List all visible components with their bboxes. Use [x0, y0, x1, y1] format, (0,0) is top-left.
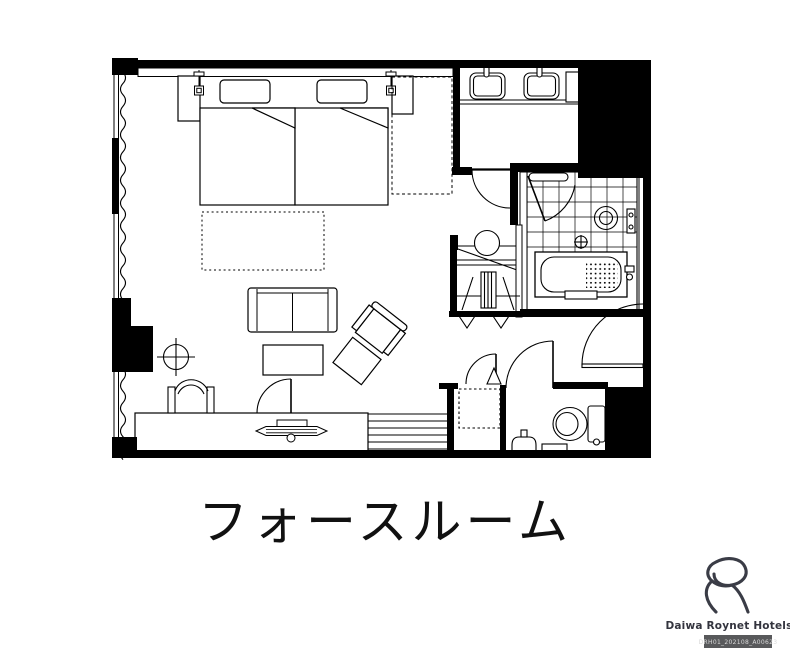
pillow: [317, 80, 367, 103]
toilet: [553, 406, 605, 445]
bed-mattress: [200, 108, 295, 205]
daiwa-roynet-monogram-icon: [706, 559, 748, 612]
coffee-table: [263, 345, 323, 375]
steps: [368, 414, 447, 449]
powder-door: [472, 170, 510, 209]
sink: [524, 66, 559, 99]
shower-controls: [627, 209, 635, 233]
vanity-cabinet: [566, 72, 579, 102]
window-curtain: [114, 70, 126, 460]
living-area: [157, 288, 410, 385]
genkan-mat: [459, 389, 500, 428]
desk-area: [135, 379, 447, 452]
bath-mat: [565, 291, 597, 299]
door-wedge: [487, 368, 501, 384]
sofa: [248, 288, 337, 332]
desk: [135, 413, 368, 452]
floor-plan-image: フォースルーム Daiwa Roynet Hotels DRH01_202108…: [0, 0, 790, 658]
headboard: [138, 68, 453, 77]
hanger-rack: [452, 272, 520, 310]
floor-plan-page: フォースルーム Daiwa Roynet Hotels DRH01_202108…: [0, 0, 790, 658]
tub-faucet: [625, 266, 634, 272]
stool-icon: [475, 231, 500, 256]
brand-logo: Daiwa Roynet Hotels DRH01_202108_A00623: [665, 559, 790, 648]
curtain-icon: [121, 72, 126, 460]
desk-chair: [168, 380, 214, 413]
brand-code: DRH01_202108_A00623: [699, 639, 778, 646]
bed-area: [138, 68, 453, 270]
closet-right-wall: [516, 225, 522, 317]
nightstand-left: [178, 76, 200, 121]
pillow: [220, 80, 270, 103]
sink: [470, 66, 505, 99]
bathtub: [535, 252, 634, 299]
towel-bar: [529, 173, 568, 181]
toilet-door: [506, 341, 553, 388]
bedroom-door: [257, 379, 291, 413]
brand-name: Daiwa Roynet Hotels: [665, 620, 790, 632]
page-title: フォースルーム: [198, 493, 572, 551]
rug-outline: [202, 212, 324, 270]
floor-lamp-icon: [157, 338, 195, 376]
